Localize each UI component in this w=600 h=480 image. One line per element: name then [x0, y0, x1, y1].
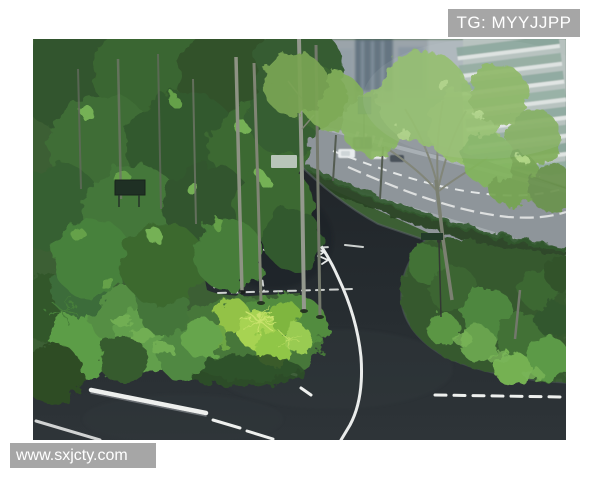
website-watermark-text: www.sxjcty.com — [16, 447, 128, 465]
aerial-park-photo — [33, 39, 566, 440]
telegram-watermark: TG: MYYJJPP — [448, 9, 580, 37]
photo-scene — [33, 39, 566, 440]
page-canvas: TG: MYYJJPP www.sxjcty.com — [0, 0, 600, 480]
telegram-watermark-text: TG: MYYJJPP — [456, 13, 571, 33]
website-watermark: www.sxjcty.com — [10, 443, 156, 468]
